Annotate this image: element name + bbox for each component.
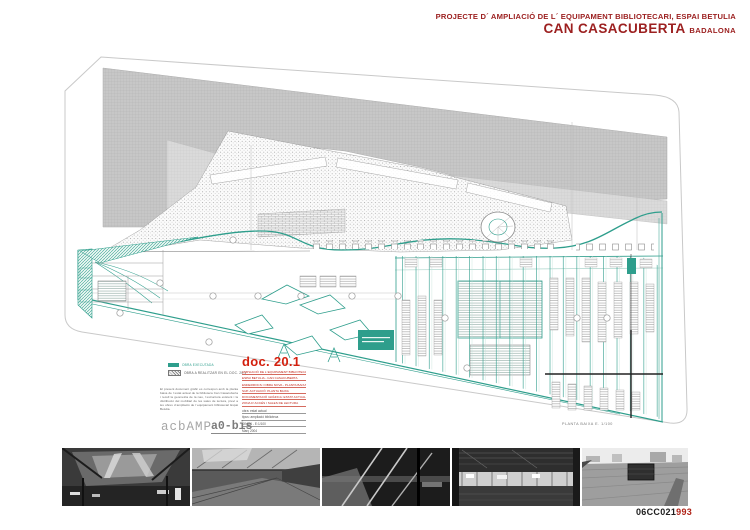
sheet-code-black: 06CC021 <box>636 507 676 517</box>
left-wing <box>78 237 198 318</box>
legend-swatch-hatch <box>168 370 181 376</box>
photo-interior-ceiling-skylights <box>62 448 190 506</box>
firm-logo-text: acbAMP <box>161 420 212 434</box>
photo-exterior-roof <box>582 448 688 506</box>
doc-note: ZONA D´ACCÉS I SALES DE LECTURA <box>242 401 306 406</box>
drawing-sheet: PROJECTE D´ AMPLIACIÓ DE L´ EQUIPAMENT B… <box>0 0 750 530</box>
legend-item-new-works: OBRA A REALITZAR EN EL DOC. 20.1 <box>168 370 246 376</box>
photo-strip <box>62 448 690 506</box>
spec-line: obra: estat actual <box>242 409 306 414</box>
doc-number: doc. 20.1 <box>242 354 306 369</box>
doc-note: ENDERROCS I OBRA NOVA - PLANTA BAIXA <box>242 383 306 388</box>
doc-note: AMPLIACIÓ DE L´EQUIPAMENT BIBLIOTECARI <box>242 370 306 375</box>
doc-note: SUP. ACTUACIÓ: PLANTA BAIXA <box>242 389 306 394</box>
storage-label-box <box>358 330 394 350</box>
legend-item-executed: OBRA EXECUTADA <box>168 363 246 367</box>
rotunda-stair <box>481 212 515 242</box>
photo-interior-glazed-facade <box>452 448 580 506</box>
legend-label: OBRA EXECUTADA <box>182 363 214 367</box>
photo-interior-hall-trusses <box>192 448 320 506</box>
sheet-number: a0-bis <box>211 420 252 434</box>
project-description: El present document gràfic es correspon … <box>160 387 238 411</box>
sheet-code: 06CC021993 <box>636 507 692 517</box>
legend: OBRA EXECUTADA OBRA A REALITZAR EN EL DO… <box>168 363 246 379</box>
reading-hall <box>396 250 663 422</box>
sheet-code-red: 993 <box>676 507 692 517</box>
legend-swatch-solid <box>168 363 179 367</box>
legend-label: OBRA A REALITZAR EN EL DOC. 20.1 <box>184 371 246 375</box>
photo-interior-diagonal-struts <box>322 448 450 506</box>
plan-caption: PLANTA BAIXA E. 1/100 <box>562 422 613 426</box>
doc-note: ESPAI BETULIA - CAN CASACUBERTA <box>242 376 306 381</box>
doc-note: DOCUMENTACIÓ GRÀFICA: ESTAT ACTUAL <box>242 395 306 400</box>
